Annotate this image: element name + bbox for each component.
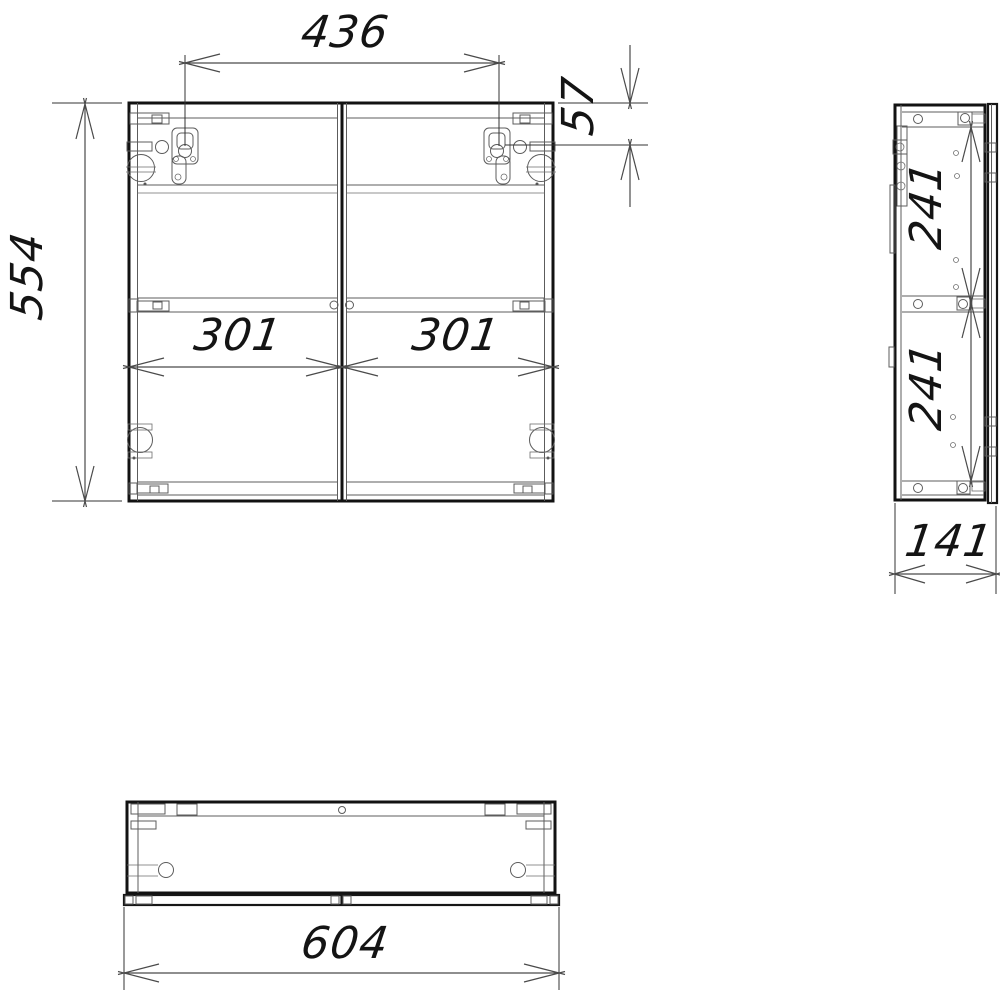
dim-label-141: 141 xyxy=(902,516,996,567)
side-bottom-rail-detail xyxy=(902,481,985,495)
bottom-view xyxy=(124,802,559,905)
dim-left-door-width: 301 xyxy=(123,310,347,376)
dim-upper-shelf-spacing: 241 xyxy=(901,121,980,309)
drawing-sheet: 436 57 554 301 301 xyxy=(0,0,1000,1000)
dim-label-301-left: 301 xyxy=(191,310,285,361)
dim-label-554: 554 xyxy=(2,229,53,323)
dim-lower-shelf-spacing: 241 xyxy=(901,297,980,487)
technical-drawing: 436 57 554 301 301 xyxy=(0,0,1000,1000)
dim-label-241-lower: 241 xyxy=(901,339,952,433)
dim-right-door-width: 301 xyxy=(337,310,559,376)
dim-cabinet-width: 604 xyxy=(118,907,565,990)
dim-cabinet-height: 554 xyxy=(2,98,122,507)
front-left-hanger-detail xyxy=(126,128,198,186)
dim-cabinet-depth: 141 xyxy=(889,503,1000,594)
side-door-edge xyxy=(985,104,997,503)
bottom-body-outline xyxy=(127,802,555,893)
bottom-cam-locks xyxy=(127,863,555,878)
dim-hanger-top-offset: 57 xyxy=(505,45,648,207)
front-cabinet-outline xyxy=(129,103,553,501)
front-right-hanger-detail xyxy=(484,128,556,186)
side-door-outline xyxy=(988,104,997,503)
dim-label-604: 604 xyxy=(298,918,392,969)
dim-label-301-right: 301 xyxy=(409,310,503,361)
bottom-center-screw-hole xyxy=(339,807,346,814)
dim-label-57: 57 xyxy=(553,73,604,138)
front-view xyxy=(126,103,556,501)
side-top-rail-detail xyxy=(902,112,985,127)
bottom-door-edge-strip xyxy=(124,895,559,905)
dim-label-241-upper: 241 xyxy=(901,158,952,252)
dim-label-436: 436 xyxy=(298,7,392,58)
